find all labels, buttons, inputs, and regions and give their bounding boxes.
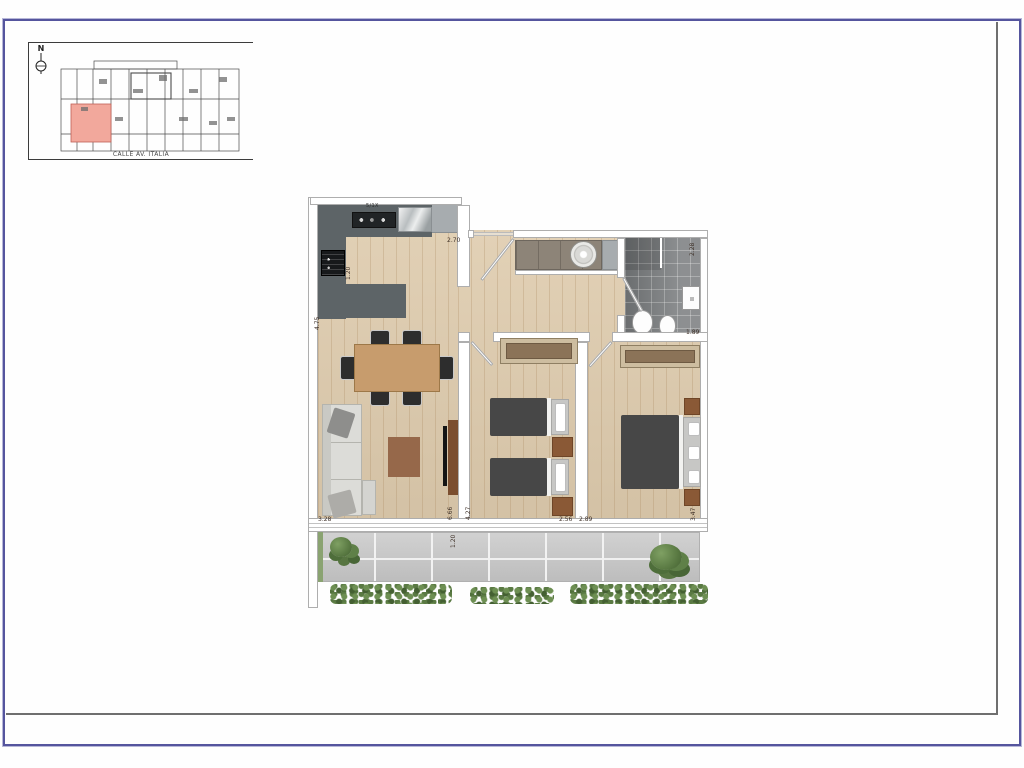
double-bed-pillows — [683, 417, 701, 487]
terrace-pavement — [318, 532, 700, 582]
toilet — [632, 310, 653, 334]
wall-top-right — [513, 230, 708, 238]
pillow — [688, 446, 700, 460]
single-bed-1-pillow — [551, 399, 569, 435]
single-bed-2-pillow — [551, 459, 569, 495]
wall-bed2-bed1 — [575, 342, 588, 520]
wall-living-bed2 — [458, 342, 470, 520]
keyplan-box: N — [28, 42, 253, 160]
entry-threshold — [474, 232, 513, 236]
grass-strip — [318, 532, 323, 582]
kitchen-counter-peninsula — [318, 284, 406, 318]
sink-drain — [690, 297, 694, 301]
pillow — [688, 422, 700, 436]
compass-icon — [33, 53, 49, 75]
north-label: N — [33, 45, 49, 53]
cooktop-label: 5/1X — [366, 204, 379, 209]
nightstand — [552, 437, 573, 457]
dimension-label: 2.28 — [690, 243, 696, 256]
pillow — [555, 403, 566, 432]
keyplan-building-drawing — [59, 59, 245, 157]
inner-frame-right — [996, 22, 998, 714]
double-bed — [621, 415, 679, 489]
dimension-label: 6.66 — [448, 507, 454, 520]
hedge — [470, 587, 554, 604]
bush — [330, 537, 352, 557]
pillow — [555, 463, 566, 492]
hedge — [330, 584, 452, 604]
north-indicator: N — [33, 45, 49, 79]
bedroom1-wardrobe-inner — [625, 350, 695, 363]
dimension-label: 1.89 — [686, 330, 699, 336]
wall-bath-left-upper — [617, 238, 625, 278]
sofa-chaise — [362, 480, 376, 515]
shower-area — [625, 238, 661, 270]
wall-left — [308, 197, 318, 608]
wall-right — [700, 238, 708, 527]
highlighted-unit — [71, 104, 111, 142]
wall-hall-bottom-a — [458, 332, 470, 342]
floor-plan-sheet: N — [0, 0, 1024, 768]
single-bed-1 — [490, 398, 547, 436]
dimension-label: 1.20 — [346, 267, 352, 280]
dimension-label: 3.28 — [318, 517, 331, 523]
dimension-label: 2.70 — [447, 238, 460, 244]
tv — [443, 426, 447, 486]
nightstand — [552, 497, 573, 516]
dimension-label: 1.20 — [451, 535, 457, 548]
nightstand — [684, 398, 700, 415]
dimension-label: 2.56 — [559, 517, 572, 523]
cooktop — [352, 212, 396, 228]
washing-machine — [570, 241, 597, 268]
nightstand — [684, 489, 700, 506]
dimension-label: 4.27 — [466, 507, 472, 520]
tv-cabinet — [448, 420, 458, 495]
coffee-table-rug — [388, 437, 420, 477]
dimension-label: 4.75 — [315, 317, 321, 330]
wall-top-kitchen — [310, 197, 462, 205]
apartment-floor-plan: 5/1X 2.701.204.753.286.664.271.202.562.8… — [308, 195, 712, 617]
pillow — [688, 470, 700, 484]
street-label: CALLE AV. ITALIA — [29, 151, 253, 158]
bedroom2-wardrobe-inner — [506, 343, 572, 359]
dining-table — [354, 344, 440, 392]
single-bed-2 — [490, 458, 547, 496]
kitchen-steel-sink — [398, 207, 432, 232]
wall-terrace-glazing — [308, 518, 708, 532]
kitchen-appliance — [321, 250, 345, 276]
hedge — [570, 584, 708, 604]
bush — [650, 544, 682, 570]
wall-step — [457, 205, 470, 287]
dimension-label: 3.47 — [691, 508, 697, 521]
wall-under-laundry — [515, 270, 624, 275]
bathroom-sink — [682, 286, 700, 310]
shower-screen — [660, 238, 662, 268]
dimension-label: 2.89 — [579, 517, 592, 523]
inner-frame-bottom — [6, 713, 998, 715]
